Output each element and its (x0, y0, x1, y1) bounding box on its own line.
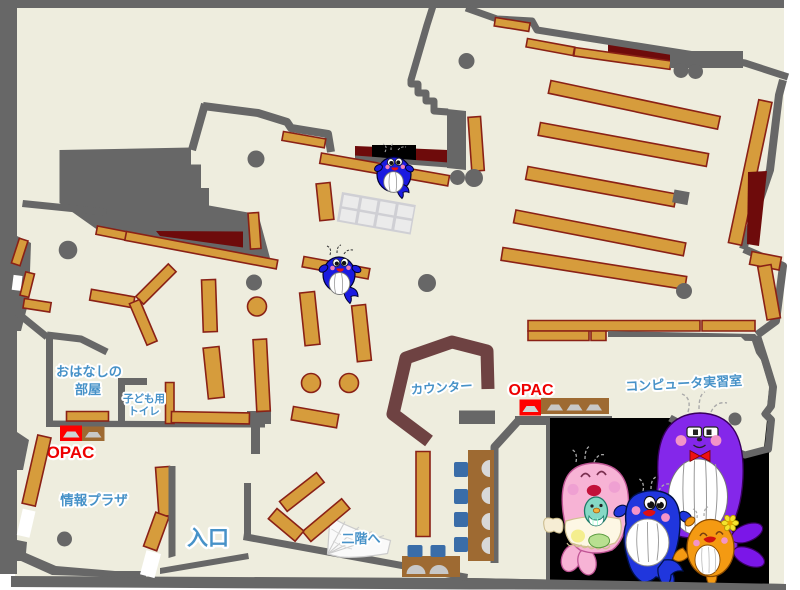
svg-text:OPAC: OPAC (47, 443, 95, 462)
svg-text:トイレ: トイレ (128, 406, 160, 418)
svg-text:子ども用: 子ども用 (123, 392, 165, 405)
svg-text:入口: 入口 (187, 527, 229, 550)
svg-text:おはなしの: おはなしの (56, 364, 122, 379)
svg-text:OPAC: OPAC (508, 382, 553, 399)
svg-text:二階へ: 二階へ (341, 531, 380, 546)
svg-text:情報プラザ: 情報プラザ (60, 492, 128, 508)
svg-text:部屋: 部屋 (75, 381, 101, 397)
